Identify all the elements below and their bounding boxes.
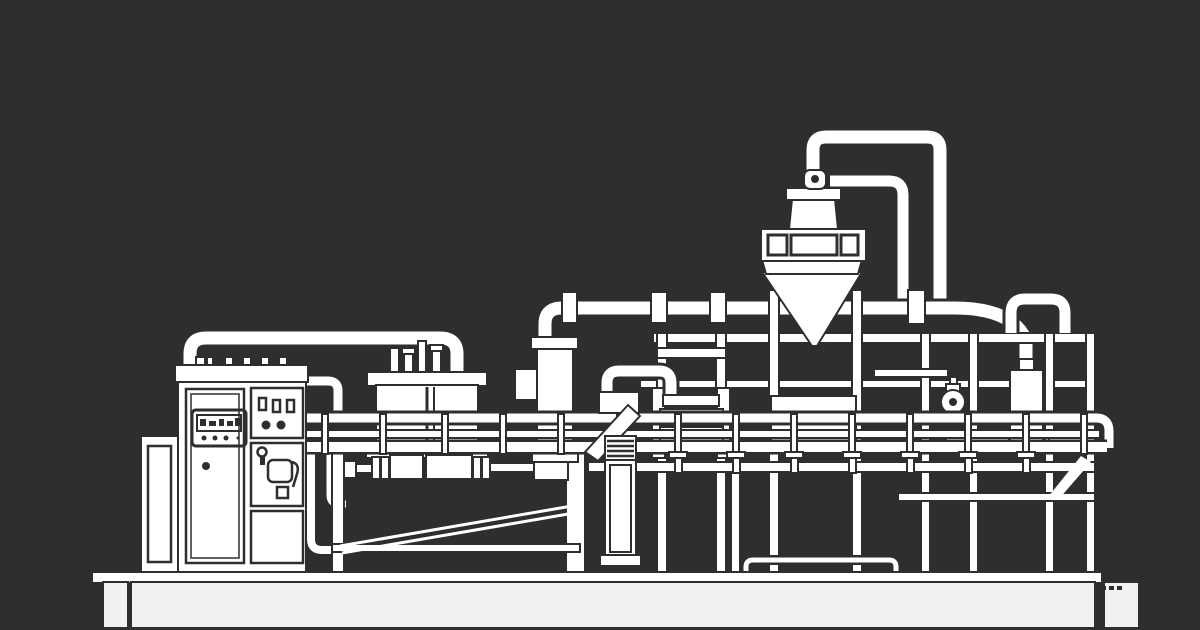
shaft-flange	[482, 457, 490, 479]
shaft-cylinder	[426, 455, 472, 479]
latch-stem	[260, 456, 265, 465]
platform-marks	[1101, 586, 1122, 590]
vessel-fitting	[390, 348, 399, 375]
pipe-flange	[562, 292, 577, 323]
shaft-flange	[372, 457, 380, 479]
display-button	[224, 436, 229, 441]
display-button	[202, 436, 207, 441]
hopper-neck	[789, 199, 838, 229]
hopper-lower-band	[762, 260, 862, 274]
platform-slab	[131, 582, 1095, 628]
cabinet-top-cap	[175, 365, 308, 382]
platform-left-block	[103, 582, 128, 628]
pipe-flange	[651, 292, 667, 323]
vessel-fitting-cap	[402, 348, 415, 354]
vessel-lid	[367, 372, 487, 386]
shaft-flange	[381, 457, 389, 479]
frame-lower-rail	[588, 462, 1095, 472]
shaft-bearing	[344, 461, 356, 478]
base-platform	[92, 572, 1139, 628]
side-panel-body	[141, 436, 178, 572]
shaft	[490, 463, 536, 472]
column-cap	[531, 337, 578, 349]
push-button	[262, 421, 271, 430]
push-button	[277, 421, 286, 430]
display-button	[213, 436, 218, 441]
roller-top-bar	[663, 395, 719, 406]
frame-lower-rail-right	[898, 493, 1095, 501]
vessel-fitting	[418, 341, 426, 375]
display-button	[237, 437, 240, 440]
pipe-flange	[908, 290, 925, 324]
pipe-flange	[710, 292, 726, 323]
ladder-rung	[657, 348, 726, 358]
side-panel	[141, 436, 178, 572]
clamp-eye	[811, 175, 819, 183]
blower-base	[600, 555, 641, 566]
machine-illustration: White line-art technical illustration of…	[0, 0, 1200, 630]
shaft-flange	[473, 457, 481, 479]
valve-pipe	[874, 369, 948, 377]
vessel-fitting-cap	[430, 345, 443, 351]
valve-hub	[949, 398, 957, 406]
control-cabinet	[175, 357, 308, 572]
shaft-cylinder	[390, 455, 423, 479]
door-knob	[202, 462, 210, 470]
stand-leg	[332, 452, 344, 574]
